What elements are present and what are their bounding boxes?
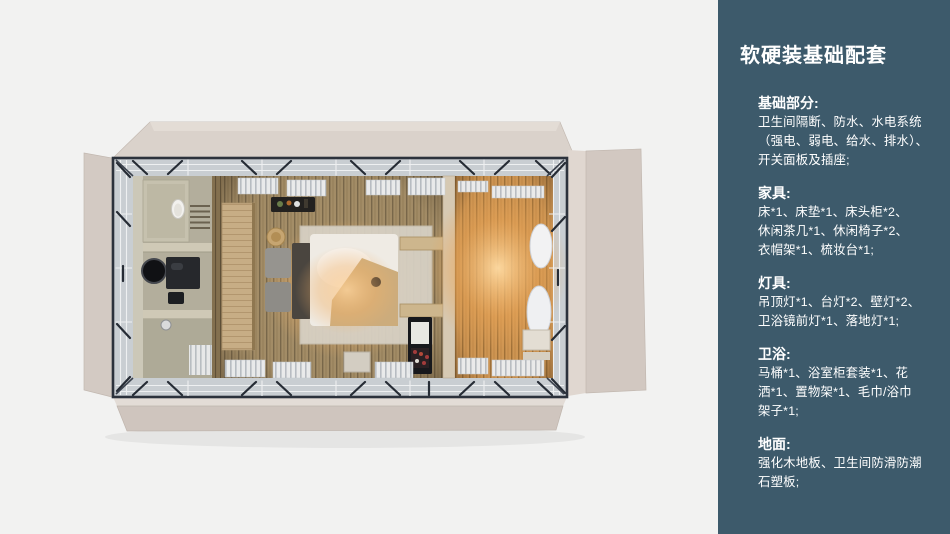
section-furniture-body: 床*1、床垫*1、床头柜*2、 休闲茶几*1、休闲椅子*2、 衣帽架*1、梳妆台… <box>758 203 936 260</box>
section-lighting: 灯具: 吊顶灯*1、台灯*2、壁灯*2、 卫浴镜前灯*1、落地灯*1; <box>758 274 936 331</box>
section-flooring: 地面: 强化木地板、卫生间防滑防潮 石塑板; <box>758 435 936 492</box>
bench-towel <box>344 352 370 372</box>
flap-bottom <box>117 406 563 431</box>
shelf-plant <box>277 201 283 207</box>
bathroom-shelf-2 <box>143 310 212 319</box>
desk-edge-shadow <box>252 203 255 350</box>
shelf-vase <box>304 199 308 208</box>
flap-top-edge <box>150 122 560 131</box>
vanity-stool <box>168 292 184 304</box>
section-bathroom-body: 马桶*1、浴室柜套装*1、花 洒*1、置物架*1、毛巾/浴巾 架子*1; <box>758 364 936 421</box>
section-basics-body: 卫生间隔断、防水、水电系统 （强电、弱电、给水、排水）、 开关面板及插座; <box>758 113 936 170</box>
slide: 软硬装基础配套 基础部分: 卫生间隔断、防水、水电系统 （强电、弱电、给水、排水… <box>0 0 950 534</box>
flap-right-fold <box>568 150 586 396</box>
section-bathroom-heading: 卫浴: <box>758 345 936 364</box>
bedroom <box>222 176 443 378</box>
bathroom-outer-wall <box>133 176 143 378</box>
floorplan-render <box>0 0 718 534</box>
section-basics: 基础部分: 卫生间隔断、防水、水电系统 （强电、弱电、给水、排水）、 开关面板及… <box>758 94 936 170</box>
wood-desk <box>222 203 255 350</box>
bathroom-shelf-1 <box>143 243 212 252</box>
lamp-glow-top <box>295 246 399 334</box>
section-flooring-heading: 地面: <box>758 435 936 454</box>
floorplan-area <box>0 0 718 534</box>
section-bathroom: 卫浴: 马桶*1、浴室柜套装*1、花 洒*1、置物架*1、毛巾/浴巾 架子*1; <box>758 345 936 421</box>
dressing-bench <box>523 330 550 350</box>
panel-sections: 基础部分: 卫生间隔断、防水、水电系统 （强电、弱电、给水、排水）、 开关面板及… <box>740 94 936 492</box>
bathroom-wood-wall <box>212 176 222 378</box>
vanity-cabinet <box>166 257 200 289</box>
bathroom <box>133 176 222 378</box>
flap-bottom-edge <box>113 397 567 406</box>
bed-pillow-1 <box>265 248 291 278</box>
vanity-sink <box>171 263 183 270</box>
curtain-bundle-1 <box>530 224 552 268</box>
section-basics-heading: 基础部分: <box>758 94 936 113</box>
vanity-mirror <box>142 259 166 283</box>
section-lighting-body: 吊顶灯*1、台灯*2、壁灯*2、 卫浴镜前灯*1、落地灯*1; <box>758 293 936 331</box>
bed-pillow-2 <box>265 282 291 312</box>
info-panel: 软硬装基础配套 基础部分: 卫生间隔断、防水、水电系统 （强电、弱电、给水、排水… <box>718 0 950 534</box>
wicker-basket-inner <box>271 232 281 242</box>
flap-left <box>84 153 112 397</box>
shower-curtain <box>189 345 212 375</box>
panel-title: 软硬装基础配套 <box>740 44 936 68</box>
section-furniture-heading: 家具: <box>758 184 936 203</box>
shower-head <box>161 320 171 330</box>
section-lighting-heading: 灯具: <box>758 274 936 293</box>
dressing-bench-shelf <box>523 352 550 360</box>
toilet-seat <box>174 204 182 217</box>
section-furniture: 家具: 床*1、床垫*1、床头柜*2、 休闲茶几*1、休闲椅子*2、 衣帽架*1… <box>758 184 936 260</box>
shelf-jar <box>294 201 300 207</box>
shelf-bottle <box>287 201 292 206</box>
flap-right <box>586 149 646 393</box>
section-flooring-body: 强化木地板、卫生间防滑防潮 石塑板; <box>758 454 936 492</box>
